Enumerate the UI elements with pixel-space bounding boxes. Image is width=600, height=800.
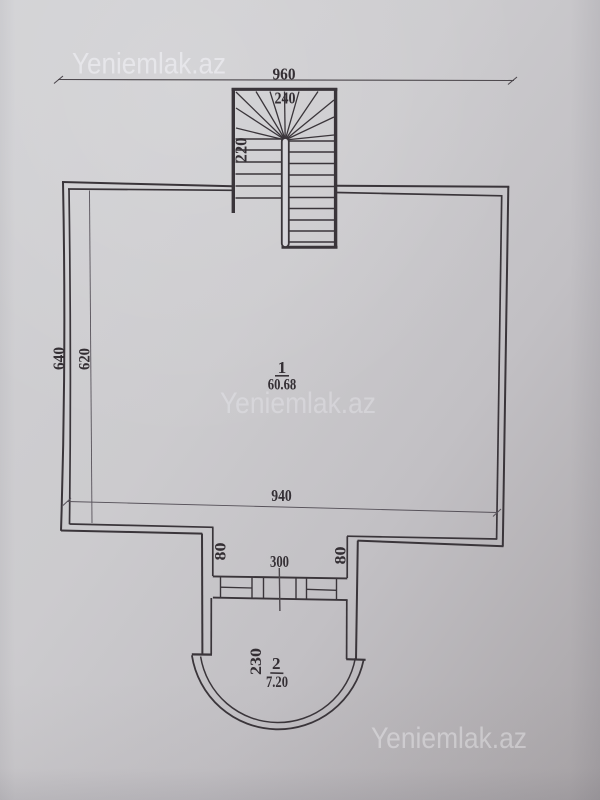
svg-text:Yeniemlak.az: Yeniemlak.az: [72, 48, 226, 81]
svg-text:220: 220: [232, 138, 251, 163]
svg-text:2: 2: [272, 654, 281, 673]
svg-text:230: 230: [248, 648, 265, 675]
svg-text:7.20: 7.20: [266, 674, 288, 691]
svg-text:60.68: 60.68: [268, 377, 297, 394]
svg-text:300: 300: [270, 552, 289, 571]
svg-text:Yeniemlak.az: Yeniemlak.az: [220, 387, 376, 420]
svg-text:Yeniemlak.az: Yeniemlak.az: [371, 722, 527, 755]
svg-text:240: 240: [275, 89, 296, 108]
svg-text:80: 80: [332, 547, 349, 565]
svg-text:620: 620: [77, 348, 94, 370]
svg-text:940: 940: [271, 486, 292, 505]
svg-text:640: 640: [51, 347, 68, 370]
svg-text:1: 1: [278, 358, 287, 377]
svg-text:960: 960: [273, 65, 296, 84]
svg-text:80: 80: [212, 543, 229, 561]
